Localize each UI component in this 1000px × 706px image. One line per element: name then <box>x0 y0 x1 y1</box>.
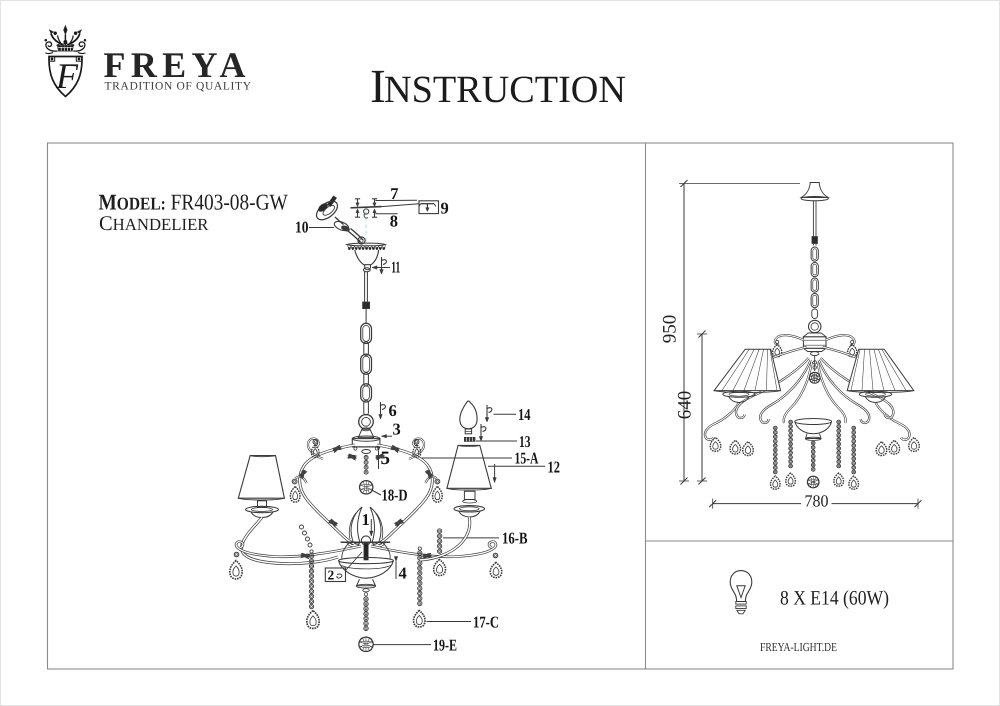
svg-text:FREYA: FREYA <box>104 45 246 85</box>
svg-text:17-C: 17-C <box>473 613 499 632</box>
svg-text:TRADITION OF QUALITY: TRADITION OF QUALITY <box>105 81 252 93</box>
svg-text:3: 3 <box>393 420 401 439</box>
svg-text:MODEL: FR403-08-GW: MODEL: FR403-08-GW <box>99 190 289 215</box>
svg-text:9: 9 <box>441 199 449 218</box>
svg-text:11: 11 <box>391 258 400 277</box>
svg-text:780: 780 <box>805 492 829 511</box>
svg-text:16-B: 16-B <box>502 529 528 548</box>
svg-text:640: 640 <box>675 391 696 420</box>
svg-text:14: 14 <box>518 405 531 424</box>
svg-text:FREYA-LIGHT.DE: FREYA-LIGHT.DE <box>760 640 837 654</box>
svg-text:6: 6 <box>389 401 397 420</box>
svg-text:10: 10 <box>295 218 309 237</box>
svg-text:F: F <box>55 56 79 96</box>
svg-text:CHANDELIER: CHANDELIER <box>99 212 209 235</box>
svg-text:15-A: 15-A <box>515 449 539 468</box>
svg-text:8: 8 <box>390 211 398 230</box>
svg-text:18-D: 18-D <box>382 486 408 505</box>
svg-text:1: 1 <box>362 510 370 529</box>
svg-text:12: 12 <box>548 458 561 477</box>
svg-text:2: 2 <box>328 568 335 583</box>
svg-text:4: 4 <box>399 564 407 583</box>
svg-text:19-E: 19-E <box>433 636 457 655</box>
svg-text:950: 950 <box>660 315 681 344</box>
svg-text:7: 7 <box>390 184 398 203</box>
svg-text:8 X E14 (60W): 8 X E14 (60W) <box>780 588 889 610</box>
svg-text:NSTRUCTION: NSTRUCTION <box>384 69 626 111</box>
